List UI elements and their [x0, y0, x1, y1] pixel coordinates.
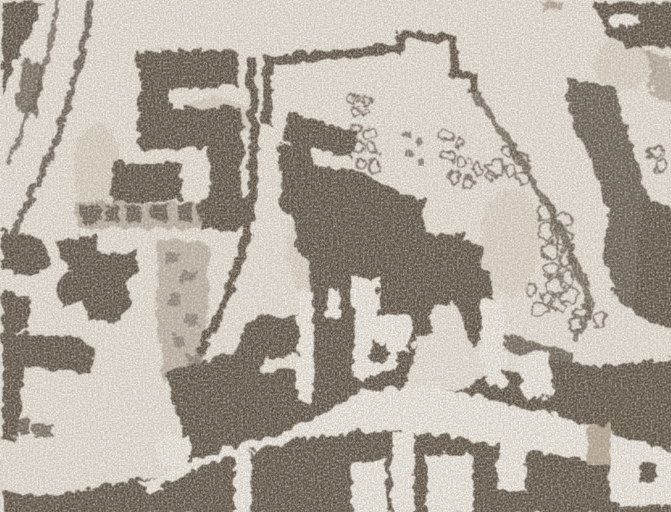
map-canvas [0, 0, 671, 512]
scanned-map-image [0, 0, 671, 512]
scan-grain-light [0, 0, 671, 512]
